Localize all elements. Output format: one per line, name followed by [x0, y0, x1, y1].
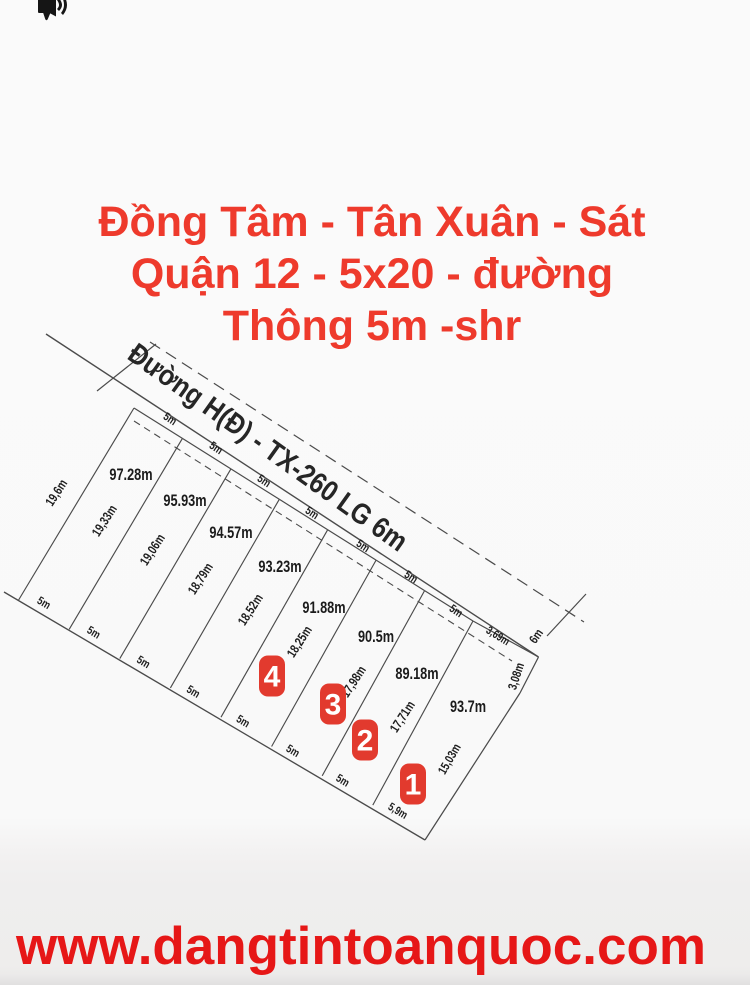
svg-text:90.5m: 90.5m: [358, 627, 394, 646]
svg-text:3: 3: [325, 689, 342, 722]
svg-text:19,6m: 19,6m: [43, 477, 71, 509]
svg-text:18,52m: 18,52m: [235, 592, 266, 629]
svg-text:18,25m: 18,25m: [284, 624, 315, 661]
svg-text:97.28m: 97.28m: [109, 465, 152, 484]
svg-text:94.57m: 94.57m: [209, 523, 252, 542]
svg-text:5m: 5m: [303, 505, 321, 523]
svg-text:Đường H(Đ) - TX-260 LG 6m: Đường H(Đ) - TX-260 LG 6m: [122, 338, 413, 559]
svg-text:5m: 5m: [402, 569, 420, 587]
svg-text:18,79m: 18,79m: [185, 561, 216, 598]
svg-text:5m: 5m: [354, 538, 372, 556]
svg-text:15,03m: 15,03m: [436, 742, 464, 777]
svg-text:5m: 5m: [84, 625, 102, 642]
svg-text:5m: 5m: [234, 713, 252, 730]
svg-text:95.93m: 95.93m: [163, 491, 206, 510]
svg-text:3,69m: 3,69m: [483, 625, 511, 649]
svg-text:5m: 5m: [255, 473, 273, 491]
svg-text:93.23m: 93.23m: [258, 557, 301, 576]
svg-text:19,06m: 19,06m: [137, 532, 168, 569]
svg-text:6m: 6m: [527, 627, 546, 646]
svg-text:2: 2: [357, 725, 374, 758]
svg-text:4: 4: [264, 661, 281, 694]
svg-text:89.18m: 89.18m: [395, 664, 438, 683]
svg-text:93.7m: 93.7m: [450, 697, 486, 716]
svg-text:5m: 5m: [134, 654, 152, 671]
svg-text:19,33m: 19,33m: [89, 503, 120, 540]
svg-text:3,08m: 3,08m: [506, 661, 527, 691]
svg-text:91.88m: 91.88m: [302, 598, 345, 617]
svg-text:5m: 5m: [184, 684, 202, 701]
svg-text:1: 1: [405, 769, 422, 802]
svg-text:5m: 5m: [35, 595, 53, 612]
